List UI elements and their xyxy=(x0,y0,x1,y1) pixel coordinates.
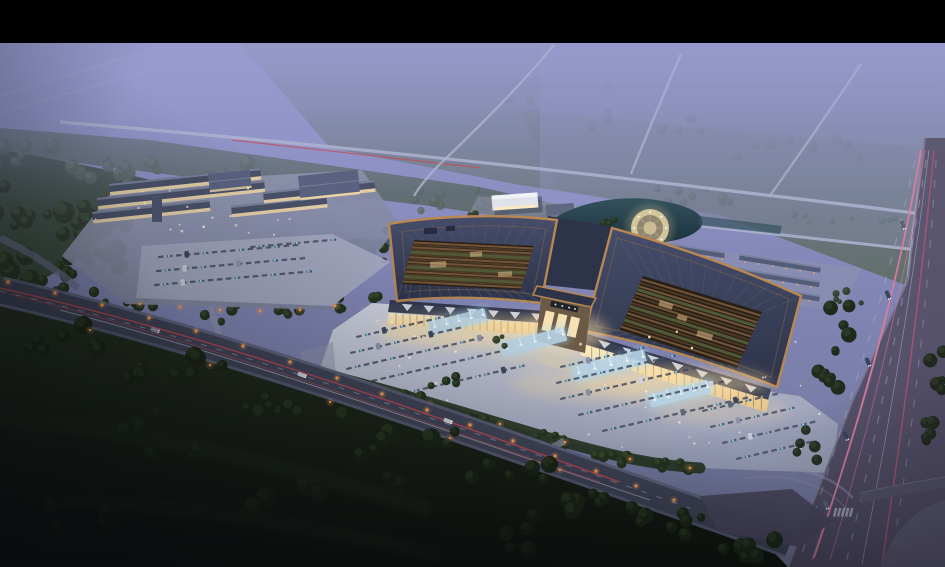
architectural-render: Dusk aerial rendering of a large illumin… xyxy=(0,0,945,567)
scene: Dusk aerial rendering of a large illumin… xyxy=(0,0,945,567)
letterbox-bar xyxy=(0,0,945,43)
vignette-corner xyxy=(0,0,945,567)
